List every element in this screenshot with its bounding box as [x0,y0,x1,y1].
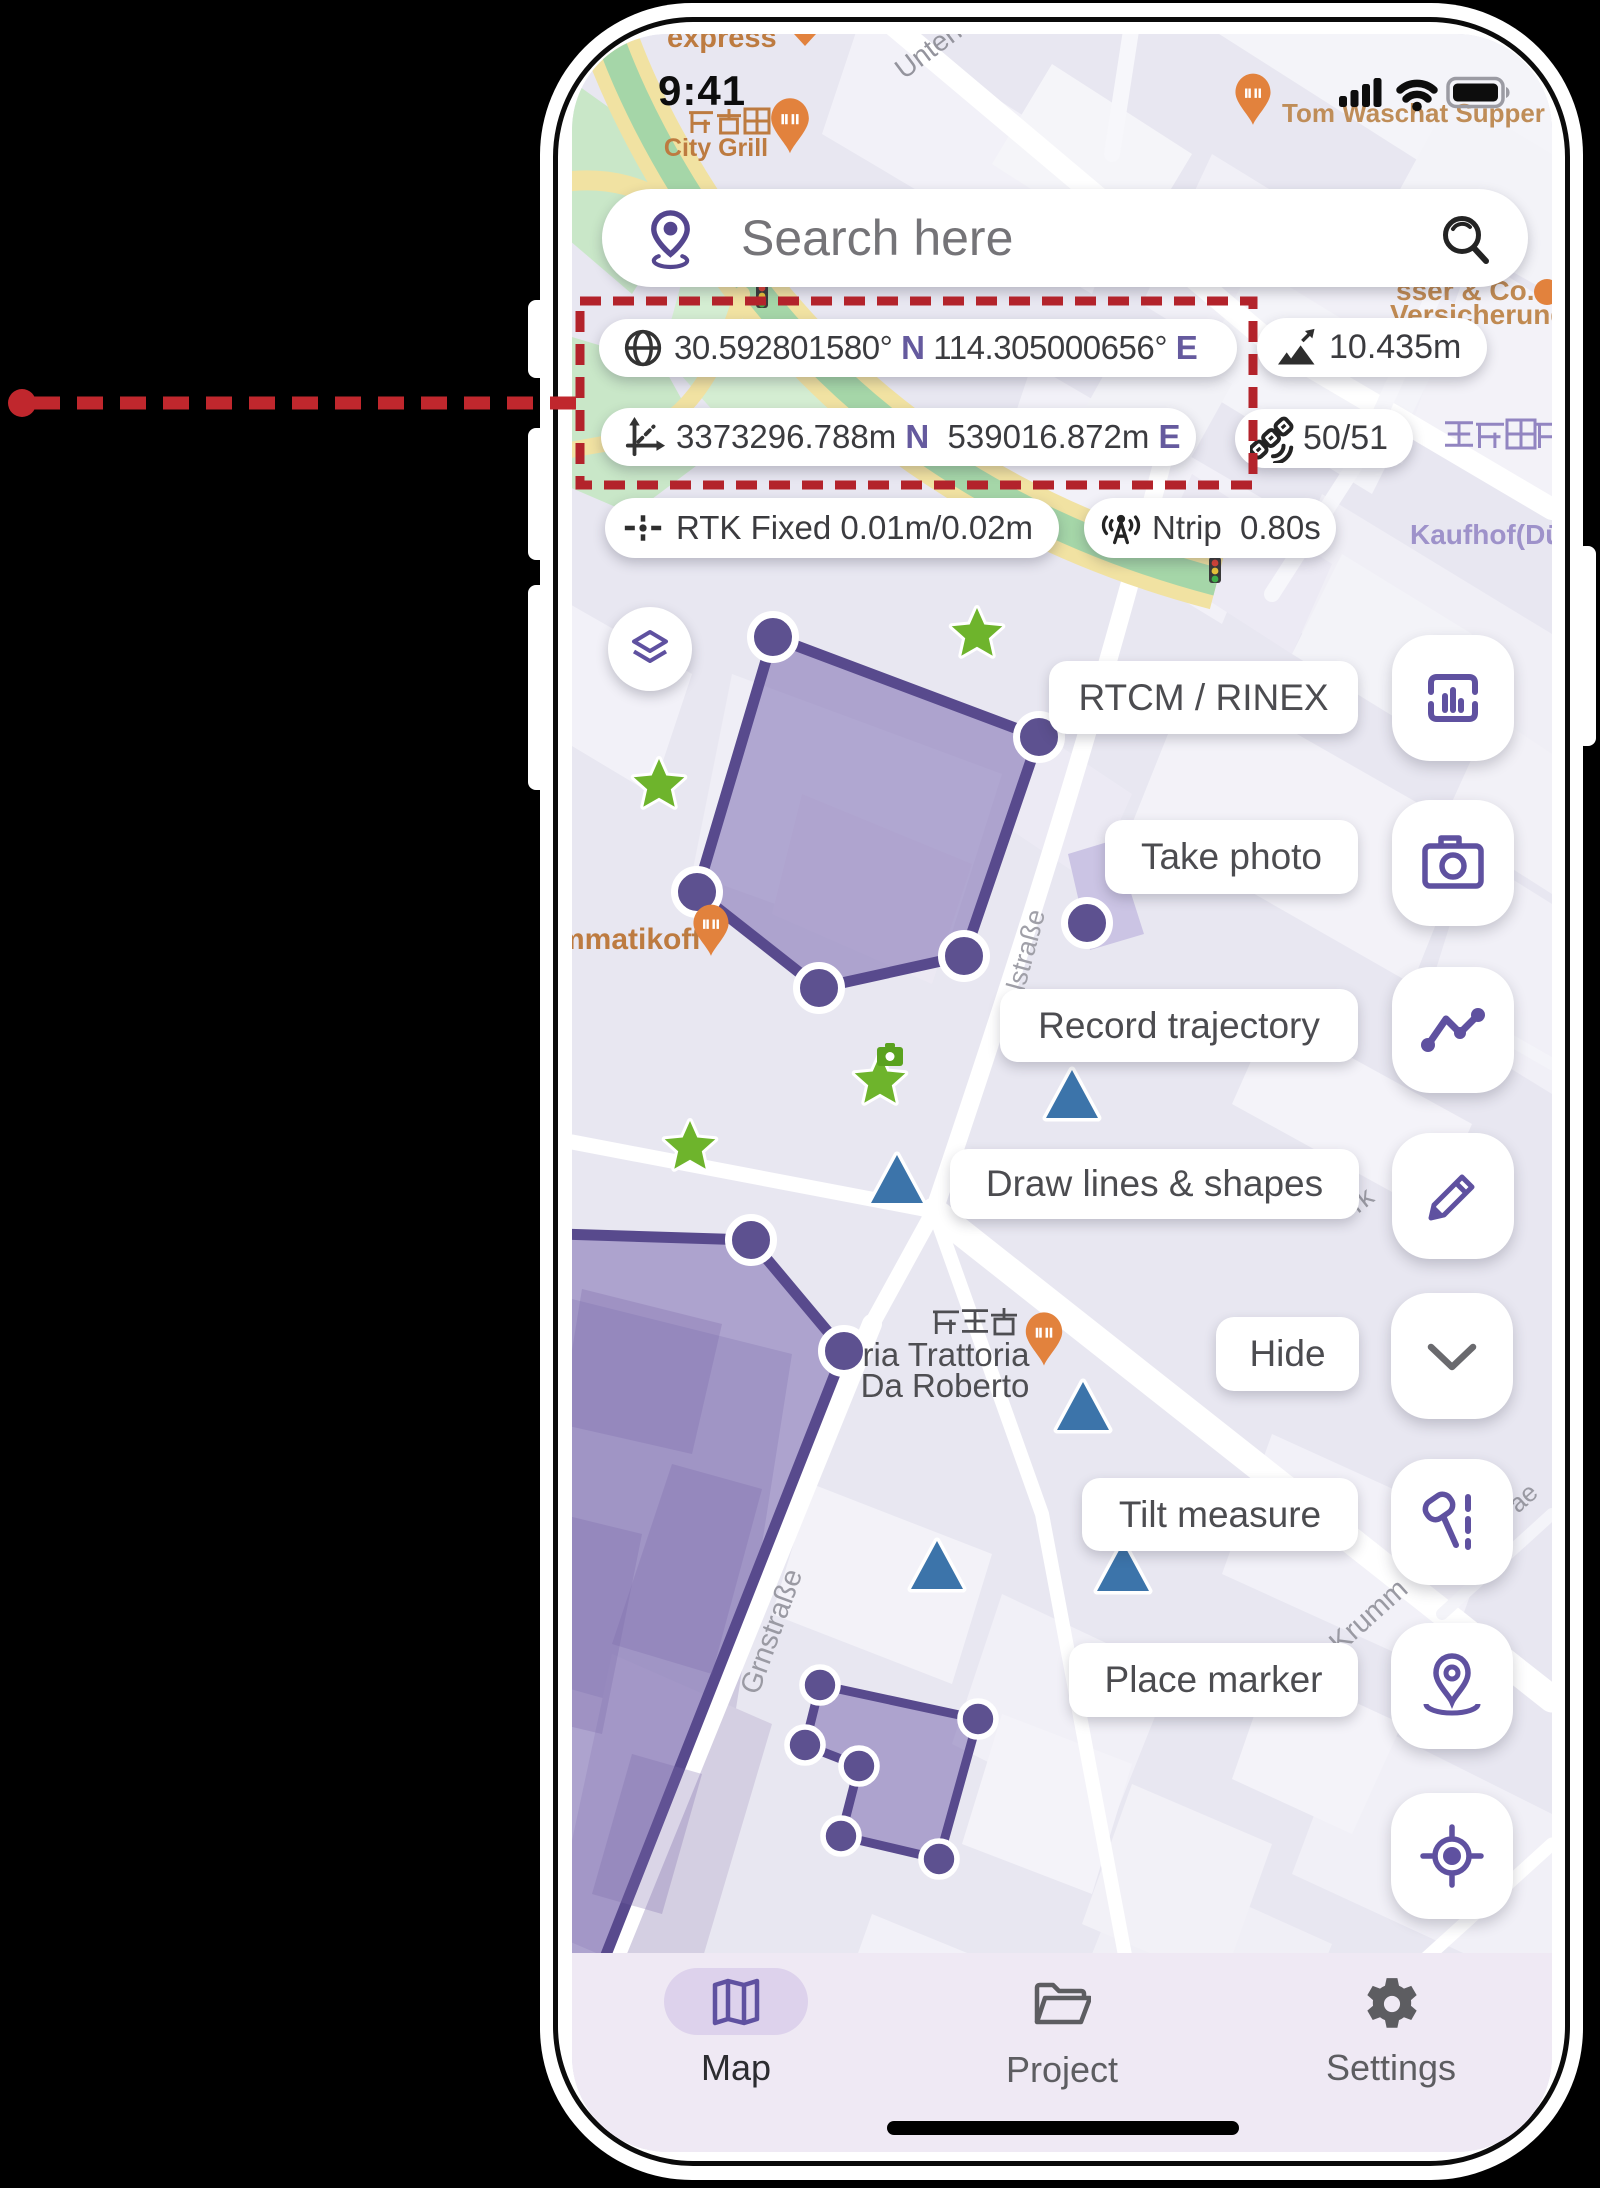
svg-text:mmatikoff: mmatikoff [572,923,702,956]
svg-text:Kaufhof(Düs: Kaufhof(Düs [1410,519,1552,550]
svg-text:City Grill: City Grill [664,134,768,162]
svg-text:Da Roberto: Da Roberto [861,1367,1030,1404]
svg-text:express: express [667,34,777,54]
